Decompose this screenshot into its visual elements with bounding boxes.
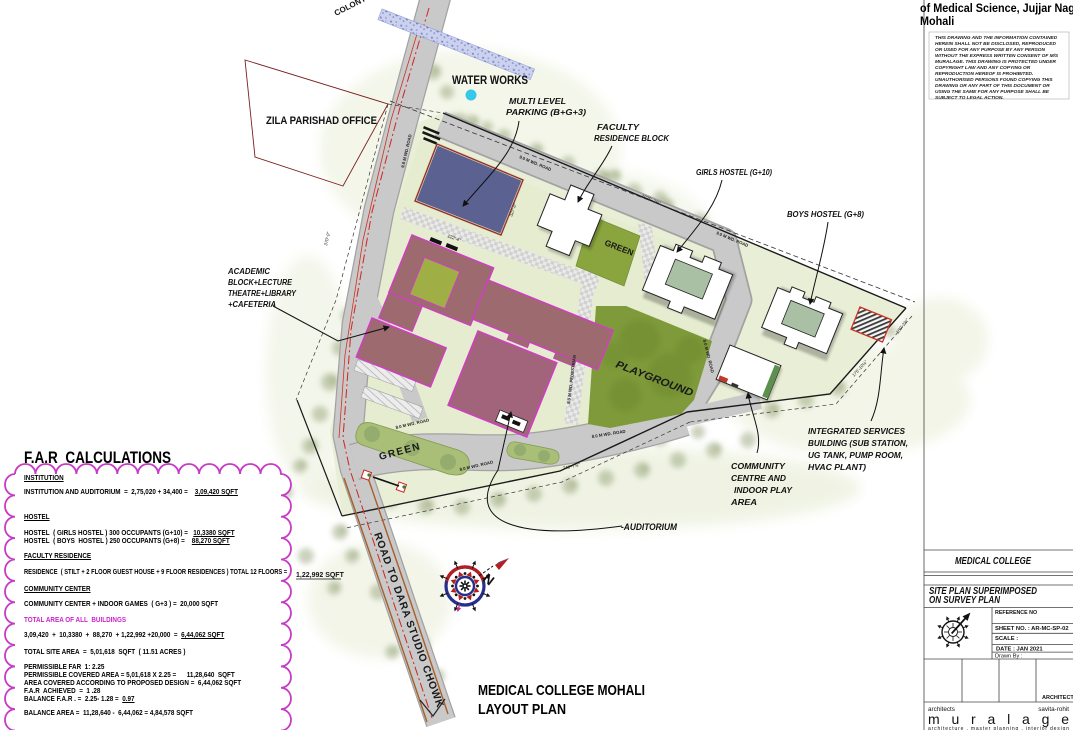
svg-text:INTEGRATED SERVICES: INTEGRATED SERVICES (808, 427, 906, 436)
svg-text:GIRLS HOSTEL (G+10): GIRLS HOSTEL (G+10) (696, 168, 772, 177)
svg-text:SCALE :: SCALE : (995, 636, 1018, 642)
svg-text:BOYS HOSTEL (G+8): BOYS HOSTEL (G+8) (787, 210, 864, 219)
svg-text:SHEET NO. : AR-MC-SP-02: SHEET NO. : AR-MC-SP-02 (995, 626, 1069, 632)
svg-text:COMMUNITY: COMMUNITY (731, 462, 786, 471)
svg-text:WATER WORKS: WATER WORKS (452, 75, 528, 87)
svg-text:CENTRE AND: CENTRE AND (731, 474, 786, 483)
svg-text:-AUDITORIUM: -AUDITORIUM (621, 522, 678, 532)
svg-text:FACULTY: FACULTY (597, 123, 640, 132)
svg-text:HVAC PLANT): HVAC PLANT) (808, 463, 866, 472)
svg-text:BUILDING (SUB STATION,: BUILDING (SUB STATION, (808, 439, 908, 448)
svg-text:architecture , master planning: architecture , master planning , interio… (928, 726, 1069, 730)
svg-text:ARCHITECT: ARCHITECT (1042, 695, 1073, 701)
svg-text:REFERENCE NO: REFERENCE NO (995, 610, 1037, 616)
svg-text:MULTI LEVEL: MULTI LEVEL (509, 97, 566, 106)
svg-text:muralage: muralage (928, 711, 1069, 727)
svg-text:RESIDENCE BLOCK: RESIDENCE BLOCK (594, 134, 670, 143)
svg-text:UG TANK, PUMP ROOM,: UG TANK, PUMP ROOM, (808, 451, 903, 460)
svg-text:DATE : JAN 2021: DATE : JAN 2021 (996, 647, 1043, 653)
svg-text:PARKING (B+G+3): PARKING (B+G+3) (506, 108, 586, 117)
svg-text:Drawn By :: Drawn By : (995, 654, 1023, 660)
svg-text:AREA: AREA (730, 498, 757, 507)
svg-text:MEDICAL COLLEGE MOHALI: MEDICAL COLLEGE MOHALI (478, 682, 645, 699)
svg-text:INDOOR PLAY: INDOOR PLAY (734, 486, 793, 495)
svg-text:LAYOUT PLAN: LAYOUT PLAN (478, 701, 566, 718)
svg-text:MEDICAL COLLEGE: MEDICAL COLLEGE (955, 556, 1031, 567)
svg-text:ON SURVEY PLAN: ON SURVEY PLAN (929, 595, 1001, 606)
